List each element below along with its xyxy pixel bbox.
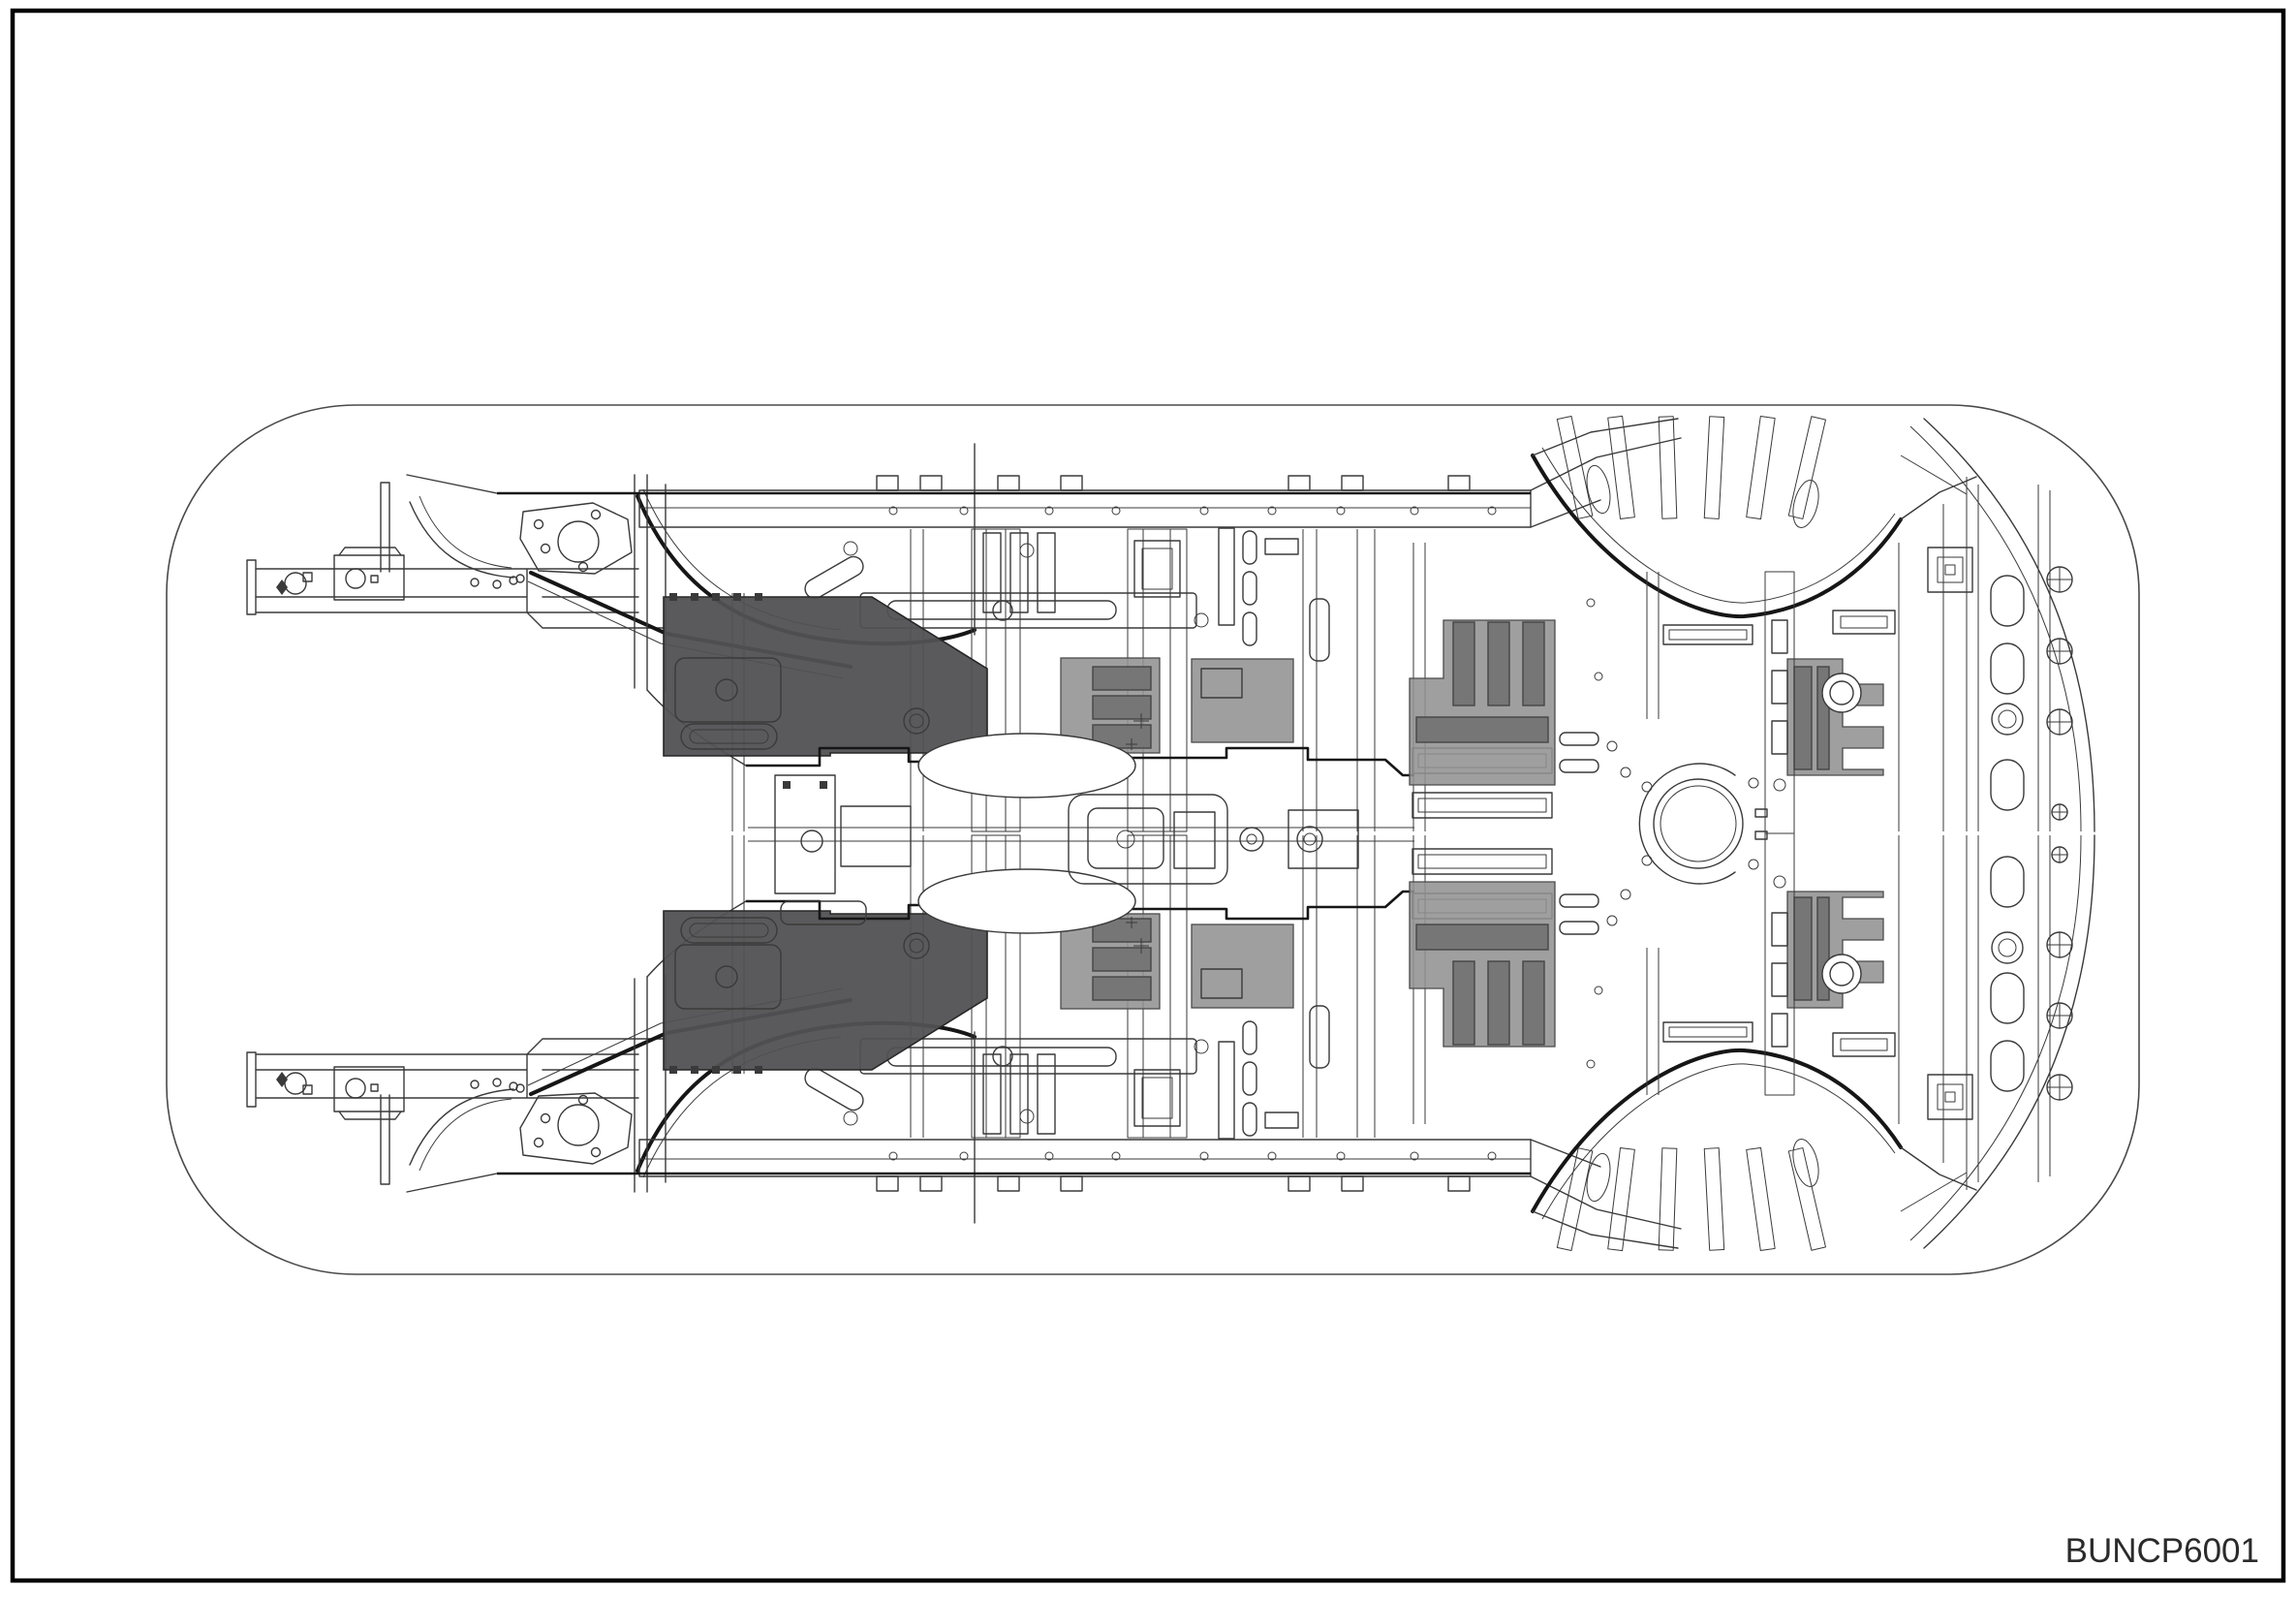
page-border xyxy=(13,11,2283,1581)
spare-tire-well xyxy=(1639,764,1767,884)
vehicle-body-outline xyxy=(167,405,2139,1274)
underbody-top-half xyxy=(247,416,2094,833)
figure-code-label: BUNCP6001 xyxy=(2065,1532,2259,1570)
manual-page: BUNCP6001 xyxy=(0,0,2296,1597)
underbody-structure-diagram: BUNCP6001 xyxy=(0,0,2296,1597)
underbody-bottom-half xyxy=(247,833,2094,1251)
